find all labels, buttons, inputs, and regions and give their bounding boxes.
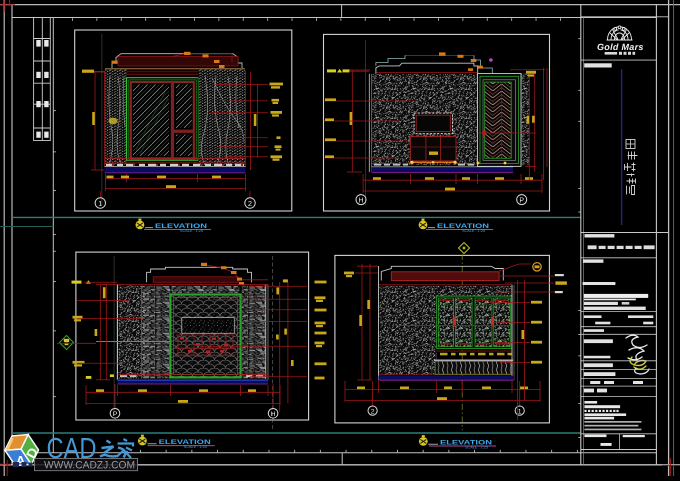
svg-text:WWW.CADZJ.COM: WWW.CADZJ.COM bbox=[44, 459, 135, 471]
svg-text:P: P bbox=[113, 411, 118, 418]
svg-text:H: H bbox=[271, 411, 276, 418]
svg-text:P: P bbox=[519, 197, 524, 204]
svg-text:SCALE : 1:25: SCALE : 1:25 bbox=[180, 229, 203, 233]
svg-text:Gold Mars: Gold Mars bbox=[597, 42, 644, 52]
svg-text:SCALE : 1:25: SCALE : 1:25 bbox=[465, 445, 488, 449]
svg-text:1: 1 bbox=[518, 408, 522, 415]
svg-text:2: 2 bbox=[371, 408, 375, 415]
svg-text:SCALE : 1:25: SCALE : 1:25 bbox=[184, 445, 207, 449]
svg-text:1: 1 bbox=[98, 199, 102, 208]
svg-text:H: H bbox=[358, 197, 363, 204]
svg-text:SCALE : 1:25: SCALE : 1:25 bbox=[462, 229, 485, 233]
svg-text:2: 2 bbox=[248, 199, 252, 208]
